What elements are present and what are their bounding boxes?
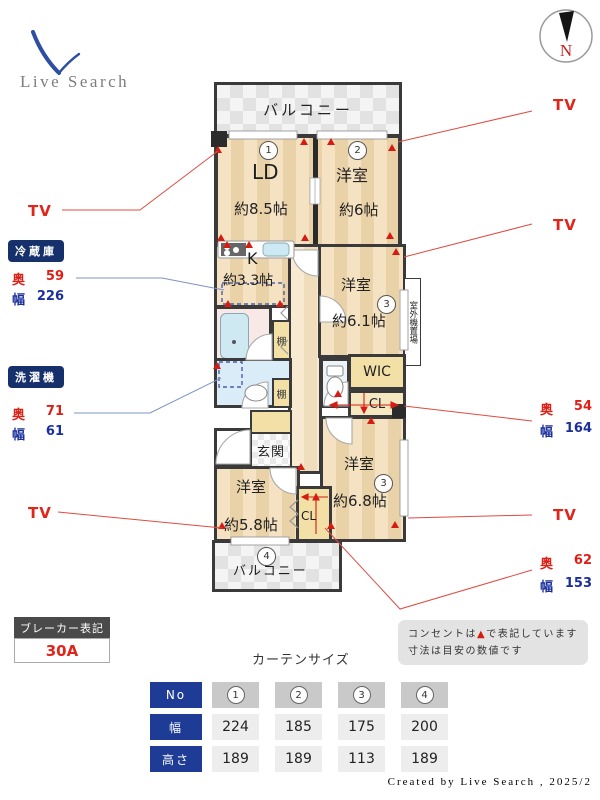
washer-width-label: 幅: [12, 424, 25, 443]
logo-wordmark: Live Search: [20, 72, 129, 92]
compass-north-label: N: [560, 41, 572, 60]
curtain-no-3-marker: 3: [377, 295, 396, 314]
corridor: [288, 244, 322, 474]
legend-note-line2: 寸法は目安の数値です: [408, 644, 578, 661]
curtain-no-cell-1: 1: [212, 682, 259, 708]
washer-depth-label: 奥: [12, 404, 25, 423]
shelf-1-label: 棚: [277, 333, 287, 348]
closet-bottom-depth-value: 62: [574, 553, 592, 572]
room-bedroom-b-name: 洋室: [341, 274, 371, 295]
tv-callout-left-top: TV: [28, 202, 52, 220]
corner-pillar: [392, 404, 406, 418]
shoe-cabinet: [250, 410, 292, 434]
wic-room: WIC: [348, 354, 406, 390]
compass-icon: N: [540, 10, 592, 62]
balcony-top-label: バルコニー: [263, 99, 353, 120]
washer-badge: 洗濯機: [8, 366, 64, 388]
curtain-header-width: 幅: [150, 714, 202, 740]
room-bedroom-d-size: 約5.8帖: [224, 514, 278, 535]
tv-callout-right-bottom: TV: [553, 506, 577, 524]
fridge-depth-value: 59: [46, 269, 64, 288]
ld-divider-wall: [313, 138, 318, 244]
curtain-height-cell-2: 189: [275, 746, 322, 772]
curtain-width-cell-4: 200: [401, 714, 448, 740]
fridge-badge: 冷蔵庫: [8, 240, 64, 262]
outdoor-unit-label: 室外機置場: [405, 279, 420, 365]
room-bedroom-a-size: 約6帖: [339, 199, 379, 220]
curtain-header-no: No: [150, 682, 202, 708]
closet-bottom-width-value: 153: [565, 576, 592, 595]
room-ld-name: LD: [252, 160, 279, 184]
curtain-header-height: 高さ: [150, 746, 202, 772]
closet-mid-width-label: 幅: [540, 421, 553, 440]
compass-needle-icon: [559, 11, 574, 42]
curtain-height-cell-3: 113: [338, 746, 385, 772]
legend-note: コンセントは▲で表記しています 寸法は目安の数値です: [398, 620, 588, 665]
entrance-porch: [214, 428, 252, 466]
logo-checkmark-icon: [33, 32, 79, 73]
washer-width-value: 61: [46, 424, 64, 443]
bedroom-c-room: [320, 416, 406, 542]
curtain-width-cell-2: 185: [275, 714, 322, 740]
breaker-title: ブレーカー表記: [14, 617, 110, 638]
bathroom: [214, 306, 272, 362]
closet-mid-width-value: 164: [565, 421, 592, 440]
legend-note-line1: コンセントは▲で表記しています: [408, 627, 578, 644]
closet-bottom-width-label: 幅: [540, 576, 553, 595]
shelf-2: 棚: [272, 378, 291, 408]
tv-callout-right-top: TV: [553, 96, 577, 114]
curtain-no-cell-2: 2: [275, 682, 322, 708]
bathtub: [220, 313, 249, 359]
ld-and-bedroom-a: [214, 134, 402, 248]
room-bedroom-d-name: 洋室: [236, 476, 266, 497]
tv-callout-left-bottom: TV: [28, 504, 52, 522]
fridge-width-label: 幅: [12, 289, 25, 308]
room-bedroom-c-size: 約6.8帖: [333, 490, 387, 511]
room-bedroom-a-name: 洋室: [336, 162, 368, 186]
room-bedroom-c-name: 洋室: [344, 453, 374, 474]
room-bedroom-b-size: 約6.1帖: [332, 310, 386, 331]
curtain-no-1-marker: 1: [259, 141, 278, 160]
balcony-bottom-label: バルコニー: [233, 560, 308, 579]
fridge-width-value: 226: [37, 289, 64, 308]
curtain-height-cell-1: 189: [212, 746, 259, 772]
credit-text: Created by Live Search , 2025/2: [388, 776, 592, 788]
room-ld-size: 約8.5帖: [234, 198, 288, 219]
curtain-no-cell-3: 3: [338, 682, 385, 708]
fridge-depth-label: 奥: [12, 269, 25, 288]
curtain-no-2-marker: 2: [348, 141, 367, 160]
wic-label: WIC: [363, 364, 391, 380]
toilet-room: [320, 358, 350, 408]
leader-lines-blue: [74, 278, 224, 413]
curtain-width-cell-3: 175: [338, 714, 385, 740]
entrance-label: 玄関: [257, 441, 285, 460]
outlet-triangle-glyph: ▲: [477, 629, 486, 640]
outdoor-unit-space: 室外機置場: [404, 278, 421, 366]
closet-bottom-depth-label: 奥: [540, 553, 553, 572]
entrance-room: 玄関: [250, 432, 292, 468]
shelf-2-label: 棚: [277, 386, 287, 401]
washer-depth-value: 71: [46, 404, 64, 423]
room-kitchen-name: K: [247, 249, 258, 268]
breaker-value: 30A: [14, 638, 110, 663]
room-kitchen-size: 約3.3帖: [223, 270, 273, 290]
curtain-no-cell-4: 4: [401, 682, 448, 708]
shelf-1: 棚: [272, 320, 291, 360]
closet-mid-depth-label: 奥: [540, 399, 553, 418]
closet-bottom-label: CL: [301, 509, 316, 523]
balcony-top: バルコニー: [214, 82, 402, 137]
tv-callout-right-mid: TV: [553, 216, 577, 234]
curtain-width-cell-1: 224: [212, 714, 259, 740]
corner-pillar: [211, 131, 227, 147]
closet-mid-depth-value: 54: [574, 399, 592, 418]
closet-mid-label: CL: [369, 397, 385, 412]
curtain-table-title: カーテンサイズ: [252, 649, 350, 668]
curtain-no-3-marker-b: 3: [374, 474, 393, 493]
curtain-height-cell-4: 189: [401, 746, 448, 772]
